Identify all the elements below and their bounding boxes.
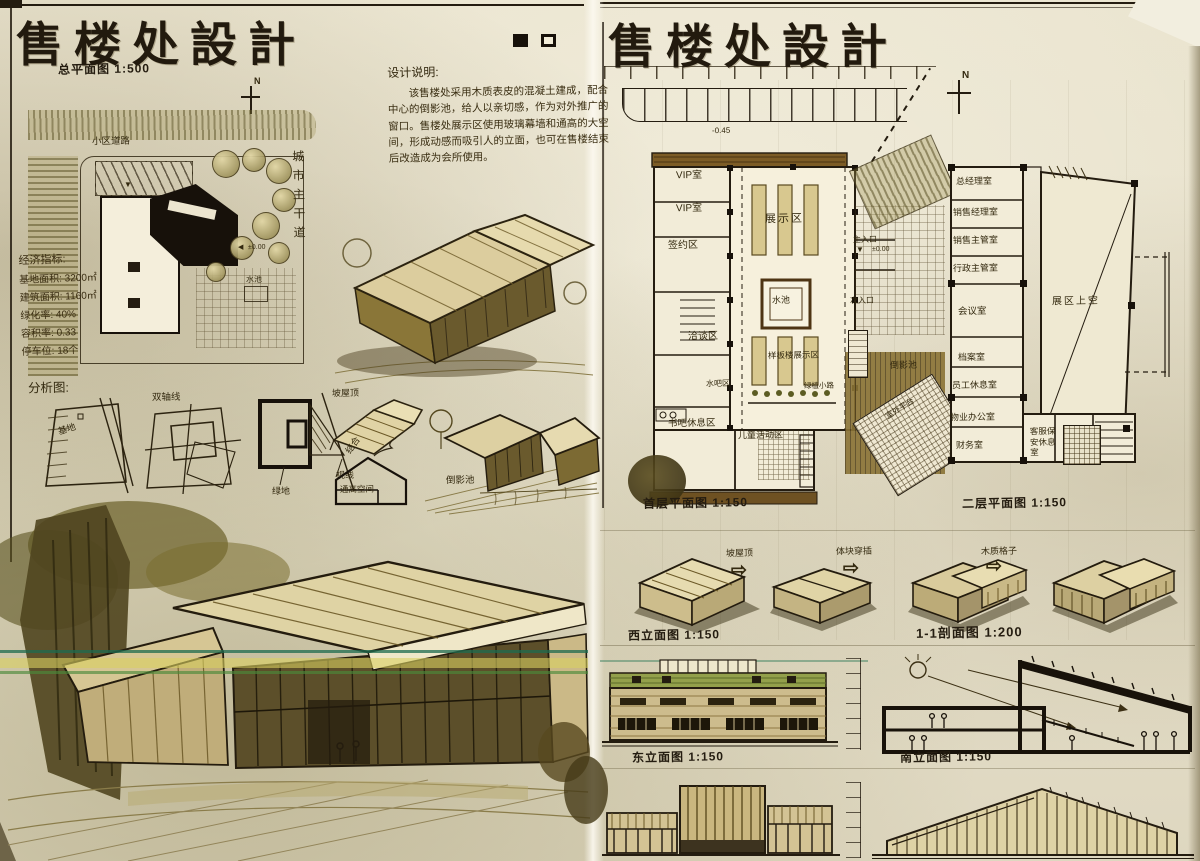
room-label-show: 展示区	[765, 213, 804, 227]
room-label-model: 样板楼展示区	[768, 350, 819, 361]
site-tree	[212, 150, 240, 178]
main-perspective-sketch	[8, 500, 590, 861]
site-entry-arrow-icon: ◀	[238, 244, 243, 252]
room-label-talk: 洽谈区	[688, 331, 718, 344]
axonometric-sketch	[325, 193, 600, 388]
massing-step2-label: 体块穿插	[836, 546, 872, 557]
design-notes-heading: 设计说明:	[387, 60, 609, 81]
room-label-sales-sup: 销售主管室	[953, 235, 998, 247]
site-pool-label: 水池	[246, 275, 262, 285]
step-arrow-icon: ⇨	[731, 560, 747, 583]
floor1-side-entry-label: 次入口	[850, 296, 874, 306]
site-tree	[242, 148, 266, 172]
analysis-diagram-axis	[143, 404, 243, 494]
massing-step-3	[898, 548, 1033, 633]
room-label-archive: 档案室	[958, 352, 985, 363]
guide-line	[600, 768, 1195, 769]
section-caption: 1-1剖面图 1:200	[916, 624, 1023, 641]
floor1-main-entry-label: 主入口	[853, 235, 877, 245]
site-tree	[268, 242, 290, 264]
north-arrow-cross-left	[241, 96, 260, 98]
concept-tallspace-label: 通高空间	[340, 484, 374, 495]
east-elevation-caption: 东立面图 1:150	[632, 749, 724, 765]
room-label-admin-sup: 行政主管室	[953, 263, 998, 275]
floor1-caption: 首层平面图 1:150	[643, 495, 748, 511]
west-elevation-caption: 西立面图 1:150	[628, 627, 720, 643]
design-notes-block: 设计说明: 该售楼处采用木质表皮的混凝土建成，配合中心的倒影池，给人以亲切感，作…	[387, 60, 611, 167]
left-sheet-left-border	[10, 6, 12, 562]
gable-elevation-drawing	[872, 783, 1194, 861]
indicators-heading: 经济指标:	[18, 248, 136, 268]
site-tree	[266, 158, 292, 184]
guide-line	[600, 645, 1195, 646]
seal-mark-2	[541, 34, 556, 47]
site-hedge-top	[28, 110, 316, 140]
right-sheet-top-border	[600, 2, 1200, 4]
step-arrow-icon: ⇨	[843, 558, 859, 581]
concept-perspective-sketch	[425, 393, 600, 515]
level-ticks-upper	[846, 658, 861, 750]
torn-corner	[1128, 0, 1200, 48]
site-pool-shape	[244, 286, 268, 302]
massing-step1-label: 坡屋顶	[726, 548, 753, 559]
presentation-board: 售楼处設計 总平面图 1:500 N 小区道路 ▼ 水池 ◀ ±0.00 城市主…	[0, 0, 1200, 861]
highlight-streak-yellow	[0, 658, 588, 668]
site-plan-caption: 总平面图 1:500	[58, 61, 150, 77]
indicator-line: 绿化率: 40%	[20, 303, 138, 322]
north-label-left: N	[254, 76, 261, 87]
room-label-meeting: 会议室	[958, 306, 987, 318]
room-label-plants: 绿植小路	[804, 381, 834, 391]
indicator-line: 基地面积: 3200㎡	[19, 267, 137, 286]
floor1-reflect-pool-label: 倒影池	[890, 360, 917, 371]
floor1-entry-marker-icon: ▼	[856, 245, 864, 255]
section-drawing	[872, 650, 1194, 750]
floor1-deck-stair	[848, 330, 868, 378]
site-tree	[252, 212, 280, 240]
east-elevation-drawing	[602, 652, 842, 752]
analysis-heading: 分析图:	[28, 381, 69, 397]
room-label-vip1: VIP室	[676, 170, 702, 182]
site-entry-level: ±0.00	[248, 244, 266, 253]
concept-pool-label: 倒影池	[446, 475, 475, 487]
room-label-service: 客服保安休息室	[1030, 426, 1061, 458]
floor2-void-label: 展区上空	[1052, 296, 1100, 309]
guide-line	[600, 530, 1195, 531]
massing-step-2	[762, 557, 877, 629]
site-road-label: 小区道路	[92, 136, 130, 148]
southwest-elevation-drawing	[602, 778, 840, 861]
analysis-green-label: 绿地	[272, 486, 290, 497]
room-label-property: 物业办公室	[950, 412, 995, 424]
site-main-road-label: 城市主干道	[290, 150, 308, 350]
room-label-vip2: VIP室	[676, 203, 702, 215]
right-sheet-title: 售楼处設計	[608, 8, 898, 77]
indicator-line: 建筑面积: 1160㎡	[19, 285, 137, 304]
step-arrow-icon: ⇨	[986, 556, 1002, 579]
indicator-line: 容积率: 0.33	[21, 321, 139, 340]
massing-step-4	[1042, 545, 1182, 635]
analysis-axis-label: 双轴线	[152, 392, 181, 404]
floor2-toilet-block	[1063, 425, 1101, 465]
room-label-staff: 员工休息室	[952, 380, 997, 392]
floor1-entry-level: ±0.00	[872, 246, 890, 255]
highlight-streak-teal	[0, 650, 588, 653]
south-elevation-caption: 南立面图 1:150	[900, 749, 992, 765]
room-label-gm: 总经理室	[956, 176, 992, 187]
room-label-sales-mgr: 销售经理室	[953, 207, 998, 219]
design-notes-body: 该售楼处采用木质表皮的混凝土建成，配合中心的倒影池，给人以亲切感，作为对外推广的…	[387, 82, 610, 167]
level-ticks-lower	[846, 782, 861, 858]
highlight-streak-green	[0, 671, 588, 674]
room-label-sign: 签约区	[668, 240, 698, 253]
analysis-diagram-site	[38, 398, 133, 493]
seal-mark-1	[513, 34, 528, 47]
room-label-book: 书吧休息区	[668, 418, 716, 430]
floor1-entry-plaza-grid	[855, 205, 945, 335]
room-label-bar: 水吧区	[706, 379, 730, 389]
floor2-caption: 二层平面图 1:150	[962, 495, 1067, 511]
site-entry-marker: ▼	[124, 180, 132, 190]
room-label-pool: 水池	[772, 295, 790, 306]
site-tree	[206, 262, 226, 282]
room-label-kids: 儿童活动区	[738, 430, 783, 442]
indicators-block: 经济指标: 基地面积: 3200㎡ 建筑面积: 1160㎡ 绿化率: 40% 容…	[18, 248, 140, 358]
room-label-finance: 财务室	[956, 440, 983, 451]
